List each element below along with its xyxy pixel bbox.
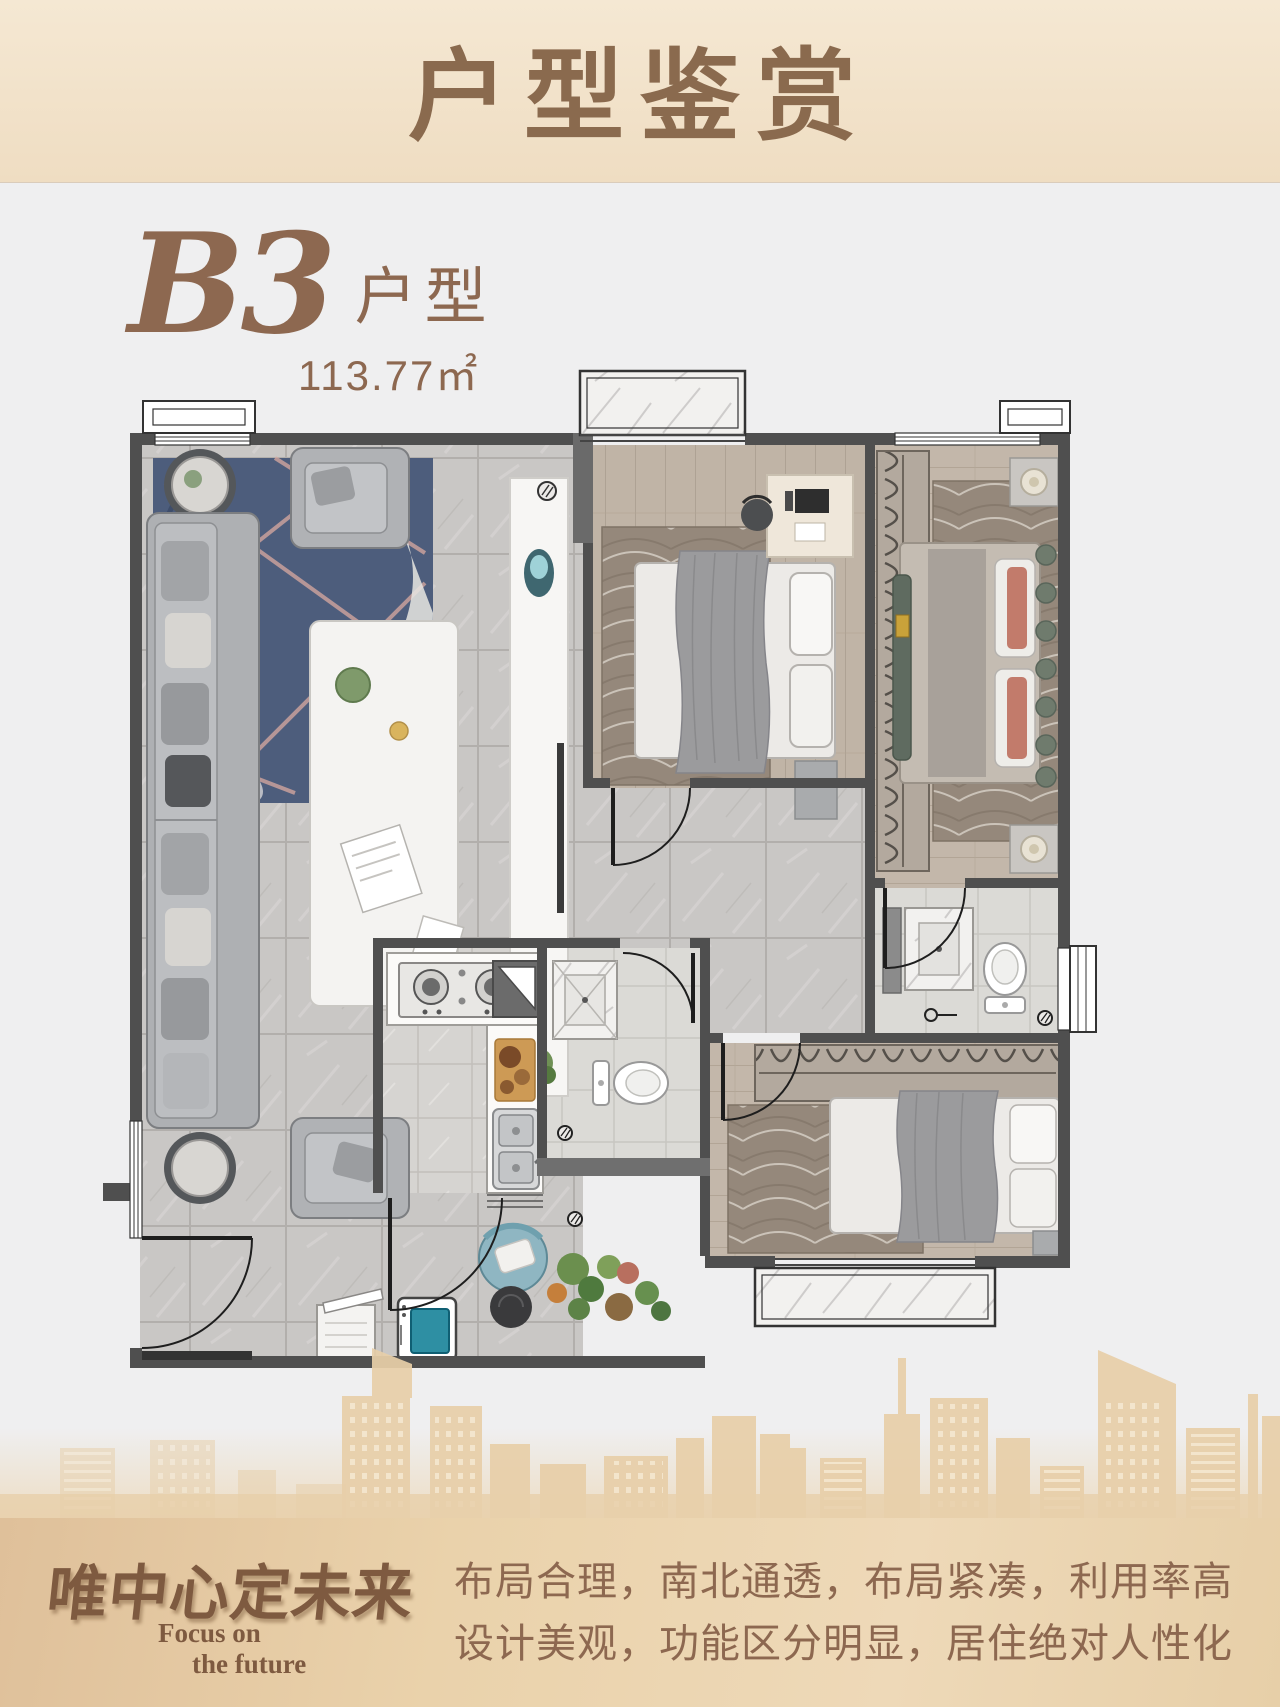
slogan-text: 布局合理，南北通透，布局紧凑，利用率高 设计美观，功能区分明显，居住绝对人性化	[414, 1551, 1280, 1675]
entry-drain-icon	[568, 1212, 582, 1226]
bath2-drain-icon	[558, 1126, 572, 1140]
city-skyline-image	[0, 1288, 1280, 1518]
footer-banner: 唯中心定未来 Focus on the future 布局合理，南北通透，布局紧…	[0, 1518, 1280, 1707]
cutting-board	[495, 1039, 535, 1101]
armchair-top	[291, 448, 409, 548]
bedroom2	[602, 475, 853, 819]
bedroom3	[728, 1045, 1063, 1255]
floor-plan	[95, 363, 1105, 1375]
corner-cabinet	[493, 961, 541, 1017]
header-banner: 户型鉴赏	[0, 0, 1280, 182]
nightstand-bottom	[1010, 825, 1058, 873]
drain-icon	[538, 482, 556, 500]
page-title: 户型鉴赏	[408, 15, 872, 160]
bedroom3-bed	[830, 1091, 1063, 1255]
city-skyline	[0, 1288, 1280, 1518]
brand-logo: 唯中心定未来 Focus on the future	[0, 1545, 414, 1680]
floor-plan-image	[95, 363, 1105, 1375]
nightstand-top	[1010, 458, 1058, 506]
slogan-line2: 设计美观，功能区分明显，居住绝对人性化	[454, 1613, 1233, 1675]
bedroom2-balcony	[580, 371, 745, 441]
slogan-line1: 布局合理，南北通透，布局紧凑，利用率高	[454, 1551, 1233, 1613]
master-shower	[905, 908, 973, 990]
side-table-bottom	[164, 1132, 236, 1204]
side-table-top	[164, 449, 236, 521]
brand-english-line2: the future	[192, 1649, 414, 1680]
master-bed	[893, 543, 1056, 787]
unit-code: B3	[128, 208, 333, 360]
kitchen-sink	[493, 1109, 540, 1189]
lounge-chair	[479, 1224, 547, 1292]
bath2-shower	[553, 961, 617, 1039]
master-bath-drain-icon	[1038, 1011, 1052, 1025]
master-toilet	[984, 943, 1026, 1013]
master-bedroom	[877, 451, 1063, 873]
coffee-table	[310, 621, 464, 1006]
unit-type-label: 户型	[355, 246, 495, 336]
sofa	[147, 513, 259, 1128]
bath2-toilet	[593, 1061, 668, 1105]
brand-calligraphy: 唯中心定未来	[43, 1545, 418, 1632]
